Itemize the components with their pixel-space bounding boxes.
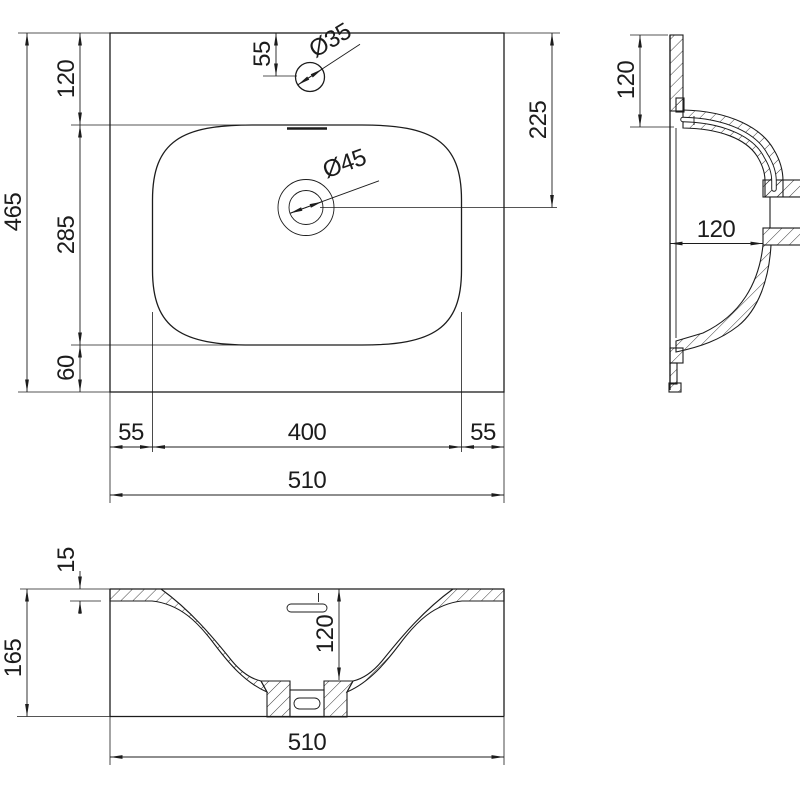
side-front-edge-strip: [670, 363, 677, 384]
faucet-leader-arrow: [298, 69, 322, 85]
plan-outline: [110, 33, 504, 392]
dim-basin-width: 400: [288, 419, 327, 446]
dim-back-margin: 120: [53, 60, 80, 99]
front-shell-left: [110, 589, 267, 692]
side-section-view: 120 120: [613, 35, 800, 392]
dim-rim-thickness: 15: [53, 547, 80, 573]
dim-overall-width: 510: [288, 467, 327, 494]
dim-front-margin: 60: [53, 355, 80, 381]
dim-side-bowl-depth: 120: [697, 216, 736, 243]
dim-right-margin: 55: [470, 419, 496, 446]
front-drain-wall-right: [324, 681, 353, 717]
front-shell-right: [347, 589, 504, 692]
side-bowl-shell-lower: [676, 245, 771, 352]
technical-drawing-page: 465 120 285 60 55 Ø35 Ø45 225 55 400 55 …: [0, 0, 800, 800]
drain-leader-arrow: [290, 202, 322, 214]
dim-faucet-hole-diameter: Ø35: [304, 18, 356, 64]
front-drain-wall-left: [261, 681, 290, 717]
front-section-view: 15 165 120 510: [0, 547, 504, 765]
front-drain-recess: [290, 690, 324, 717]
dim-front-overall-width: 510: [288, 729, 327, 756]
dim-basin-depth: 285: [53, 216, 80, 255]
dim-faucet-offset: 55: [249, 41, 276, 67]
basin-outline: [153, 125, 462, 345]
side-drain-pipe: [770, 197, 800, 228]
plan-view: 465 120 285 60 55 Ø35 Ø45 225 55 400 55 …: [0, 18, 560, 503]
side-rim-step-bottom: [670, 348, 683, 363]
dim-drain-from-back: 225: [525, 101, 552, 140]
dim-drain-hole-diameter: Ø45: [319, 144, 370, 184]
side-drain-flange-bottom: [763, 228, 800, 245]
dim-left-margin: 55: [118, 419, 144, 446]
dim-overall-height: 165: [0, 639, 27, 678]
dim-overall-depth: 465: [0, 193, 27, 232]
overflow-slot-front: [287, 604, 327, 612]
dim-side-back-offset: 120: [613, 61, 640, 100]
side-front-foot: [669, 383, 681, 392]
dim-front-bowl-depth: 120: [312, 615, 339, 654]
washbasin-drawing: 465 120 285 60 55 Ø35 Ø45 225 55 400 55 …: [0, 0, 800, 800]
